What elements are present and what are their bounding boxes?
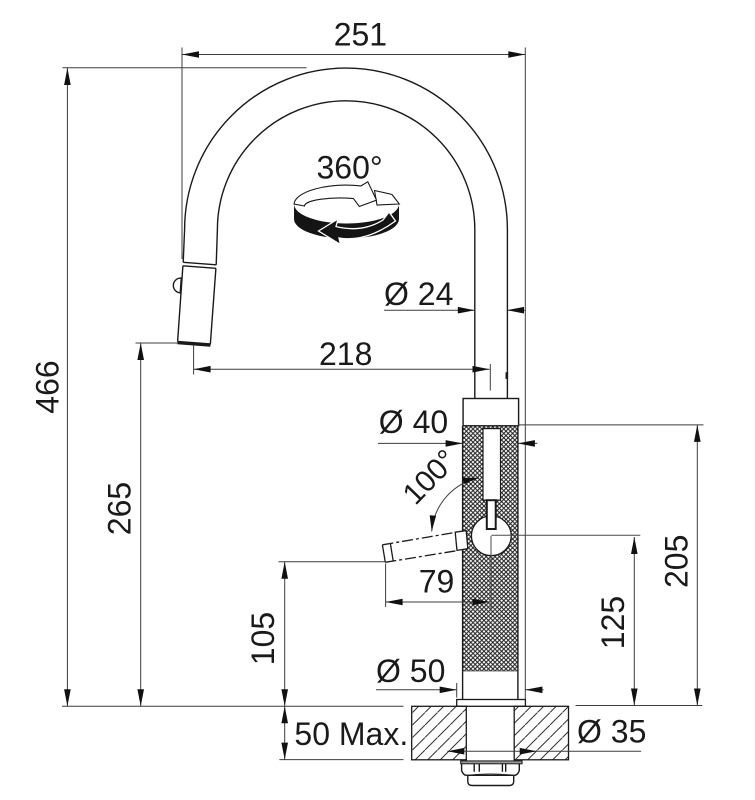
svg-text:360°: 360° [317, 149, 383, 185]
svg-text:Ø 24: Ø 24 [384, 276, 453, 312]
svg-text:466: 466 [30, 360, 66, 413]
svg-text:79: 79 [419, 564, 455, 600]
svg-text:251: 251 [334, 17, 387, 53]
svg-text:Ø 35: Ø 35 [577, 714, 646, 750]
svg-text:105: 105 [245, 612, 281, 665]
svg-text:218: 218 [319, 336, 372, 372]
svg-text:125: 125 [595, 596, 631, 649]
svg-text:Ø 40: Ø 40 [379, 404, 448, 440]
svg-text:50 Max.: 50 Max. [294, 716, 408, 752]
svg-text:205: 205 [659, 535, 695, 588]
svg-text:265: 265 [102, 482, 138, 535]
svg-text:Ø 50: Ø 50 [376, 653, 445, 689]
